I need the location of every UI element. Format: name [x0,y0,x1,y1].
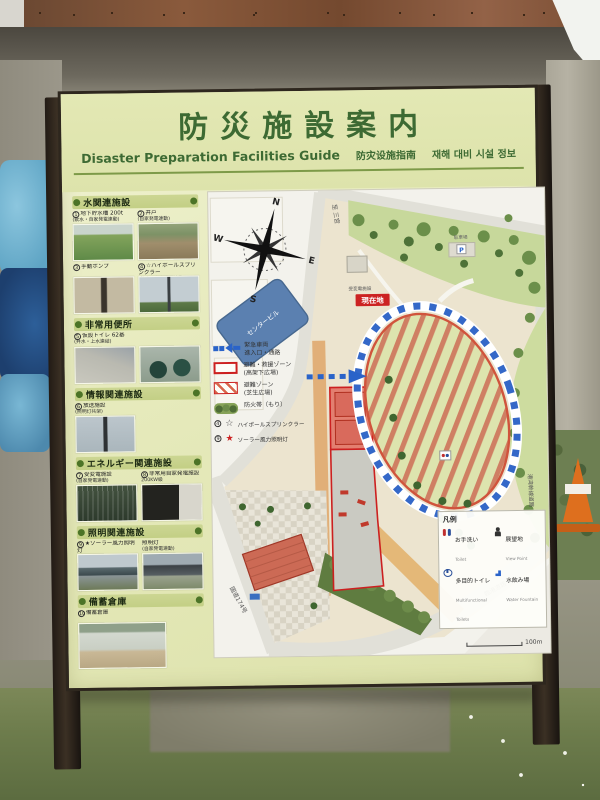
white-star-icon: ☆ [225,419,233,429]
parking-p-icon: P [459,246,464,254]
subtitle-korean: 재해 대비 시설 정보 [432,145,516,161]
facility-item: 4☆ハイポールスプリンクラー(飲水・自家発電連動) [138,262,200,313]
section-toilet: 非常用便所 5仮設トイレ 62基(井水・上水連結) [74,316,201,384]
bullet-icon [196,596,203,603]
item-label: 手動ポンプ [81,264,109,270]
section-title: 水関連施設 [83,195,131,209]
bullet-icon [79,598,86,605]
legend-item-firebreak: 防火帯（もり） [214,400,338,414]
facility-photo [76,484,138,522]
item-label: 放送施設 [83,403,105,409]
blue-car [250,594,260,600]
photo-scene: 防災施設案内 Disaster Preparation Facilities G… [0,0,600,800]
legend-item-viewpoint: 展望地View Point [493,526,541,565]
facility-photo [74,346,136,384]
legend-item-evacuation-zone: 避難ゾーン(芝生広場) [214,380,338,397]
red-outline-box-icon [213,362,239,374]
map-scale: 100m [466,640,542,647]
legend-label: 避難・救援ゾーン [243,361,291,369]
park-map: 受変電施設 現在地 駐車場 P [208,188,550,658]
legend-label: 防火帯（もり） [244,401,286,409]
item-label: ☆ハイポールスプリンクラー [138,262,196,276]
bullet-icon [75,321,82,328]
item-number: 4 [214,420,221,427]
wheelchair-icon [443,569,452,577]
facility-item: 照明灯(自家発電連動) [142,539,204,590]
legend-item-solar-light: 9 ★ ソーラー風力照明灯 [214,432,338,444]
section-title: 備蓄倉庫 [89,594,127,608]
viewpoint-icon [493,527,502,536]
legend-label: ハイポールスプリンクラー [237,420,304,429]
section-title: エネルギー関連施設 [87,456,173,470]
facility-item: 7受変電施設(自家発電連動) [76,471,138,522]
section-title: 非常用便所 [85,317,133,331]
subtitle-chinese: 防灾设施指南 [356,146,416,162]
facility-legend: 凡例 お手洗いToilet 展望地View Point [438,510,548,629]
item-label: 井戸 [145,210,156,216]
legend-label: 進入口・通路 [244,349,280,357]
legend-item-emergency-route: 緊急車両進入口・通路 [213,340,337,357]
scale-bar [466,642,522,647]
facility-photo [78,622,167,669]
red-star-icon: ★ [225,434,233,444]
item-label: 地下貯水槽 200t [80,210,123,217]
facility-photo [75,415,136,453]
bullet-icon [193,389,200,396]
item-number: 9 [214,435,221,442]
zone-legend: 緊急車両進入口・通路 避難・救援ゾーン(高架下広場) 避難ゾーン(芝生広場) [213,340,338,449]
legend-label: (芝生広場) [244,389,273,396]
facility-photo [138,222,200,260]
section-header: 情報関連施設 [75,386,201,401]
facility-photo [73,223,135,261]
facility-photo [138,275,200,313]
item-label: ★ソーラー風力照明灯 [77,540,135,554]
section-header: 水関連施設 [72,194,198,209]
facility-photo [77,553,139,591]
section-water: 水関連施設 1地下貯水槽 200t(飲水・自家発電連動) 2井戸(自家発電連動) [72,194,200,314]
header-divider [74,167,524,175]
facility-photo [141,483,203,521]
section-information: 情報関連施設 6放送施設(照明灯共架) [75,386,202,453]
section-title: 情報関連施設 [86,387,143,401]
legend-label: 避難ゾーン [244,381,274,388]
facility-item: 1地下貯水槽 200t(飲水・自家発電連動) [72,210,134,261]
facility-item: 9★ソーラー風力照明灯 [77,540,139,591]
toilet-map-icon [440,451,451,460]
toilet-icon [443,528,452,537]
section-storage: 備蓄倉庫 10備蓄倉庫 [78,593,205,669]
sign-subtitles: Disaster Preparation Facilities Guide 防灾… [62,145,536,167]
legend-label-en: Multifunctional Toilets [456,597,487,621]
water-fountain-icon [494,568,503,577]
section-header: 照明関連施設 [77,524,203,539]
legend-label: (高架下広場) [244,369,279,376]
item-label: 受変電施設 [84,472,112,478]
legend-item-multipurpose-toilet: 多目的トイレMultifunctional Toilets [443,567,491,625]
item-label: 照明灯 [142,540,159,546]
scale-label: 100m [525,640,542,646]
legend-label: ソーラー風力照明灯 [238,435,288,444]
section-energy: エネルギー関連施設 7受変電施設(自家発電連動) 8非常用自家発電施設200KW… [76,455,203,522]
facility-item: 2井戸(自家発電連動) [137,209,199,260]
legend-label-en: Water Fountain [506,597,538,602]
legend-item-fountain: 水飲み場Water Fountain [494,567,542,625]
item-sublabel: (照明灯共架) [75,408,201,416]
legend-item-sprinkler: 4 ☆ ハイポールスプリンクラー [214,417,338,429]
bullet-icon [192,319,199,326]
substation-building [347,256,367,272]
section-header: 備蓄倉庫 [78,593,204,608]
firebreak-trees-icon [214,402,240,414]
red-hatch-box-icon [214,382,240,394]
legend-label-en: Toilet [455,557,466,562]
legend-label-jp: お手洗い [455,538,478,544]
sign-title: 防災施設案内 [61,98,536,149]
bullet-icon [78,529,85,536]
bullet-icon [77,460,84,467]
legend-label-jp: 展望地 [505,537,522,543]
item-label: 非常用自家発電施設 [149,470,199,477]
sign-board: 防災施設案内 Disaster Preparation Facilities G… [58,85,546,692]
legend-label: 緊急車両 [244,341,268,348]
item-number: 10 [78,610,85,617]
bullet-icon [195,527,202,534]
facility-photo [73,276,135,314]
legend-item-rescue-zone: 避難・救援ゾーン(高架下広場) [213,360,337,377]
legend-label-jp: 多目的トイレ [456,578,491,584]
section-header: 非常用便所 [74,316,200,331]
item-number: 3 [73,264,80,271]
bullet-icon [76,391,83,398]
section-header: エネルギー関連施設 [76,455,202,470]
facility-sidebar: 水関連施設 1地下貯水槽 200t(飲水・自家発電連動) 2井戸(自家発電連動) [72,194,205,673]
sign-content: 水関連施設 1地下貯水槽 200t(飲水・自家発電連動) 2井戸(自家発電連動) [72,188,535,680]
legend-label-en: View Point [506,556,528,561]
item-label: 仮設トイレ 62基 [82,332,125,339]
facility-item: 3手動ポンプ [73,263,135,314]
blue-dashed-arrow-icon [213,342,240,354]
legend-item-toilet: お手洗いToilet [443,526,491,565]
facility-photo [139,345,201,383]
item-label: 備蓄倉庫 [86,610,108,616]
section-lighting: 照明関連施設 9★ソーラー風力照明灯 照明灯(自家発電連動) [77,524,204,591]
sign-header: 防災施設案内 Disaster Preparation Facilities G… [61,88,536,193]
facility-legend-title: 凡例 [443,514,541,525]
section-title: 照明関連施設 [88,525,145,539]
bullet-icon [73,199,80,206]
subtitle-english: Disaster Preparation Facilities Guide [81,147,340,166]
bullet-icon [190,197,197,204]
sign: 防災施設案内 Disaster Preparation Facilities G… [0,0,600,800]
facility-item: 8非常用自家発電施設200KW級 [141,470,203,521]
facility-photo [142,552,204,590]
current-location-label: 現在地 [361,296,384,305]
bullet-icon [194,458,201,465]
legend-label-jp: 水飲み場 [506,578,529,584]
